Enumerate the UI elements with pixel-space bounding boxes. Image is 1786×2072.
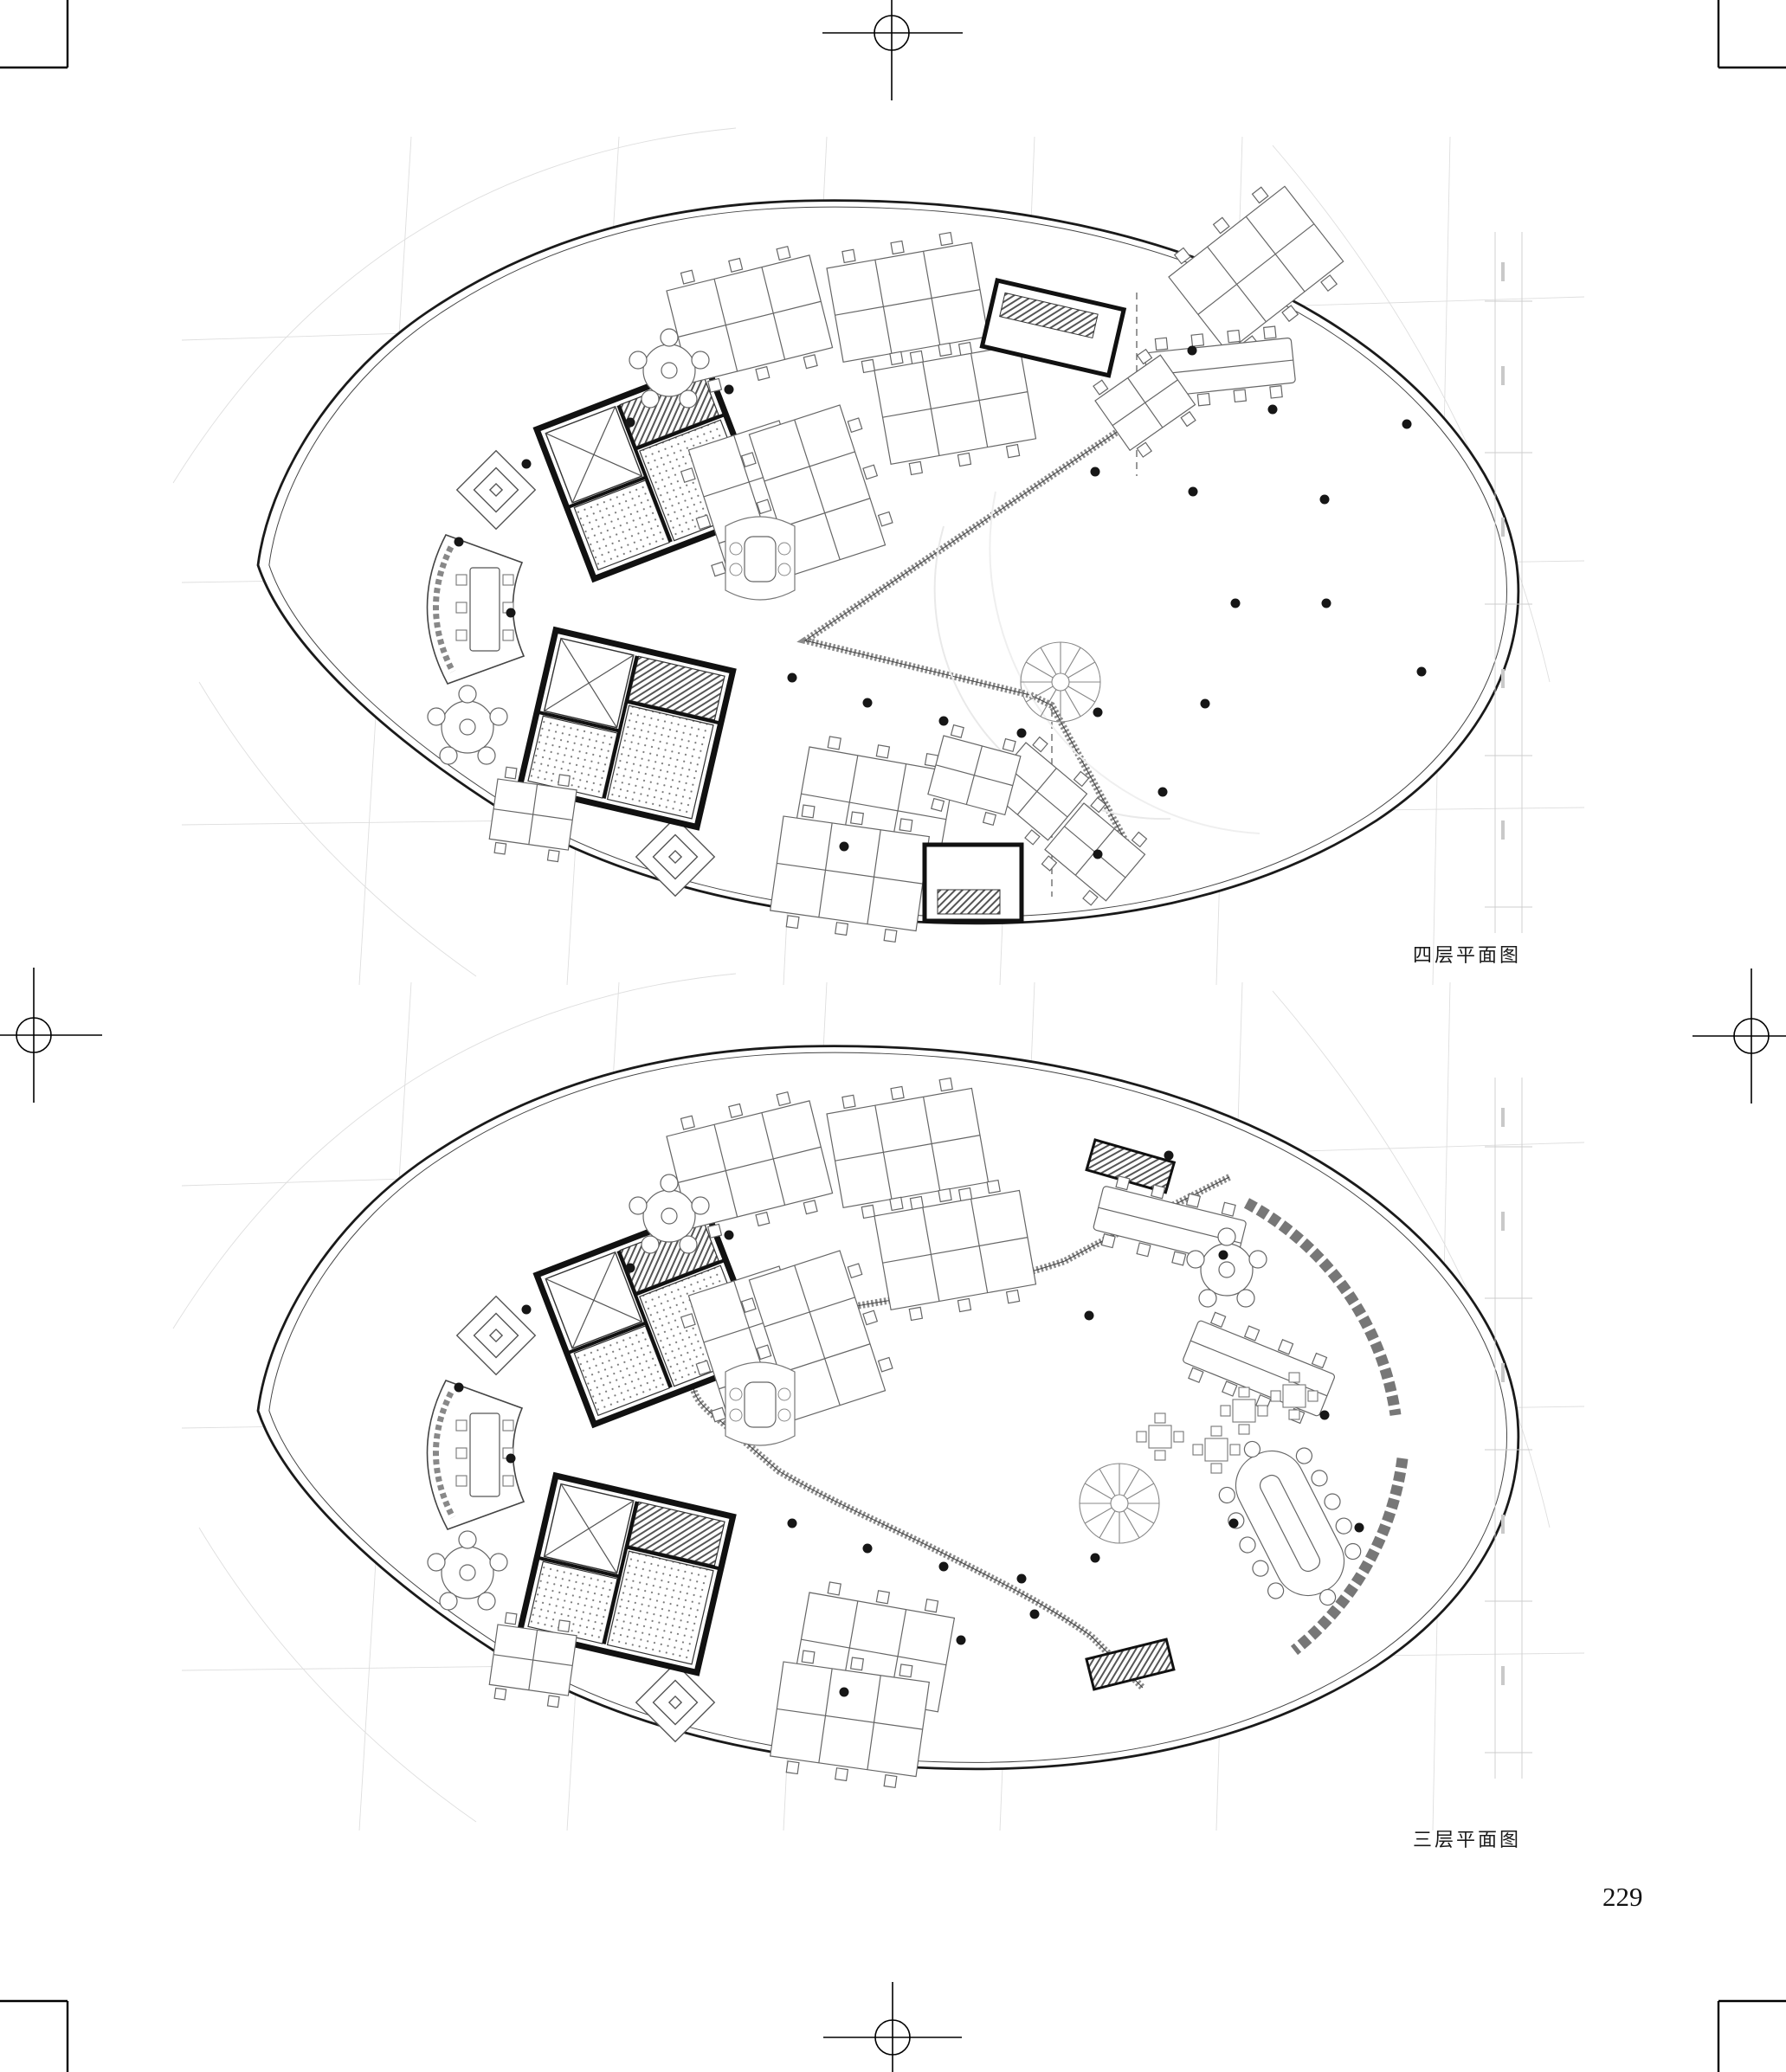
- floor-plan-4f: [173, 128, 1584, 985]
- book-page: 四层平面图 三层平面图 229: [0, 0, 1786, 2072]
- crop-mark-icon: [1718, 2001, 1786, 2072]
- service-room-lower: [925, 845, 1022, 921]
- registration-mark-icon: [1693, 968, 1786, 1104]
- floor-plan-3f: [173, 974, 1584, 1831]
- crop-mark-icon: [0, 2001, 68, 2072]
- page-graphics: [0, 0, 1786, 2072]
- registration-mark-icon: [822, 0, 963, 100]
- page-number: 229: [1602, 1882, 1643, 1913]
- registration-mark-icon: [823, 1982, 962, 2072]
- caption-floor-3: 三层平面图: [1413, 1824, 1521, 1852]
- caption-floor-4: 四层平面图: [1413, 940, 1521, 968]
- crop-mark-icon: [1718, 0, 1786, 68]
- registration-mark-icon: [0, 968, 102, 1103]
- crop-mark-icon: [0, 0, 68, 68]
